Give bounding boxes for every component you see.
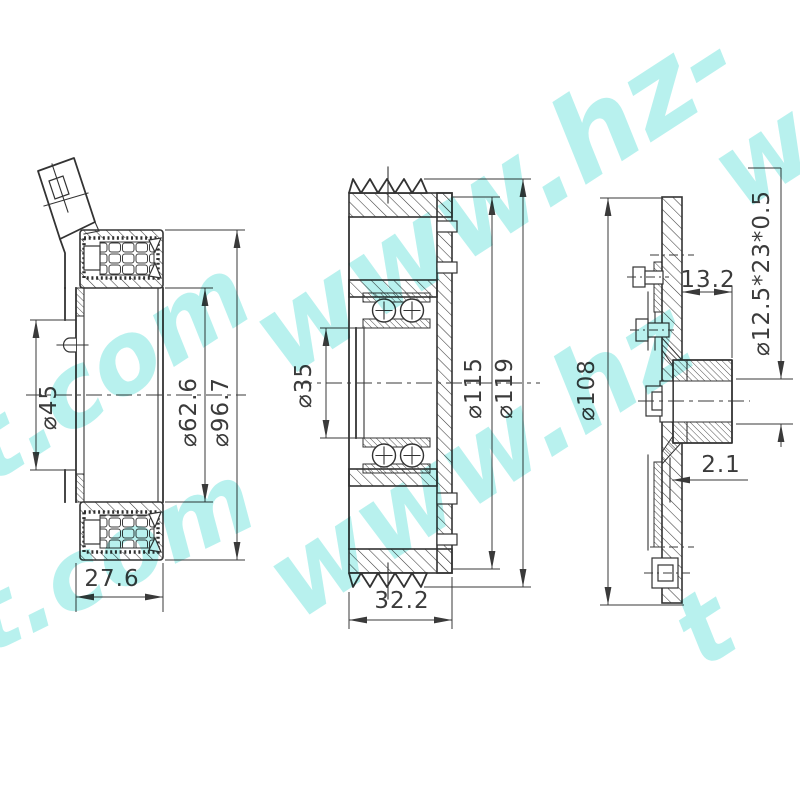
watermark-text: t (652, 564, 758, 690)
clutch-pulley-drawing: ⌀45 ⌀62.6 ⌀96.7 27.6 (0, 0, 800, 800)
drawing-canvas: ⌀45 ⌀62.6 ⌀96.7 27.6 (0, 0, 800, 800)
dim-hub-gap: 2.1 (701, 452, 741, 478)
dim-coil-outer-diameter: ⌀96.7 (208, 377, 234, 447)
watermark-layer: t.com www.hz- t.com www.hz w t (0, 0, 800, 690)
coil-winding-top (100, 242, 154, 275)
dim-hub-offset: 13.2 (680, 267, 735, 293)
